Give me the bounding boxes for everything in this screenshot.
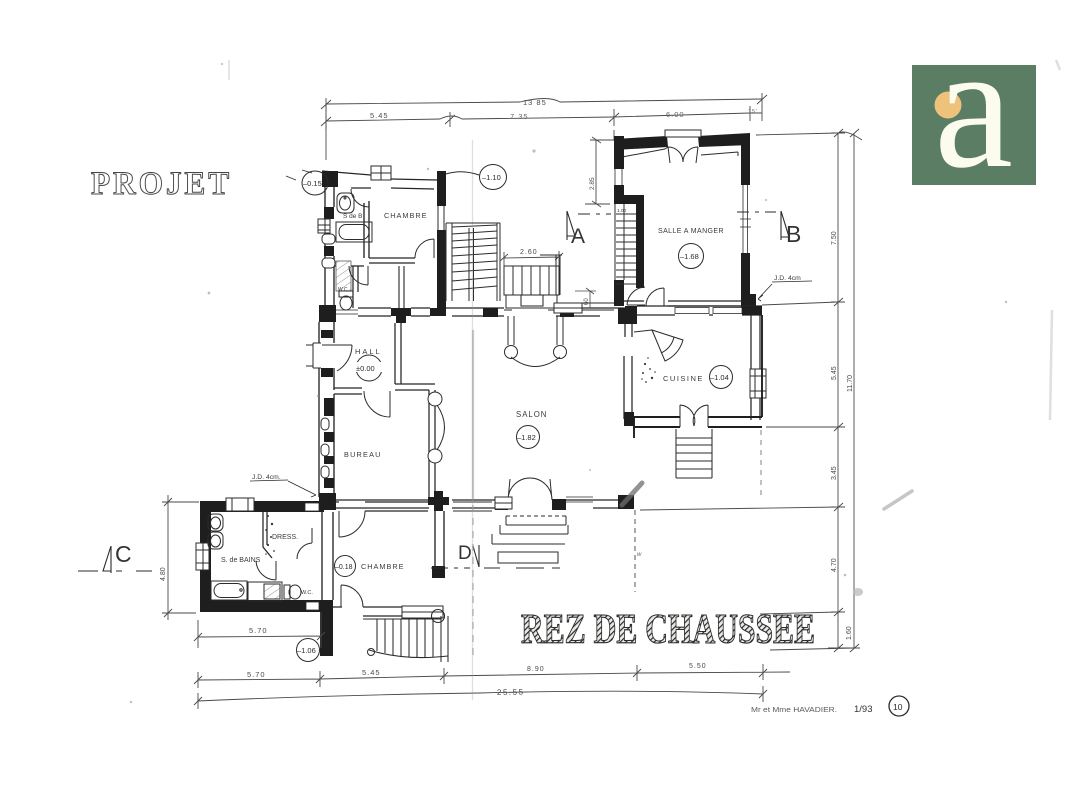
svg-text:–1.06: –1.06: [297, 646, 316, 655]
svg-text:4.70: 4.70: [831, 558, 838, 572]
svg-text:BUREAU: BUREAU: [344, 450, 382, 459]
svg-text:SALON: SALON: [516, 410, 547, 419]
svg-text:5.50: 5.50: [689, 663, 707, 670]
svg-text:SALLE A MANGER: SALLE A MANGER: [658, 228, 724, 235]
svg-text:–0.18: –0.18: [335, 564, 353, 571]
svg-text:7.50: 7.50: [831, 231, 838, 245]
svg-text:A: A: [571, 225, 585, 248]
svg-text:11.70: 11.70: [847, 375, 854, 392]
svg-text:–1.82: –1.82: [517, 433, 536, 442]
svg-text:4.80: 4.80: [160, 567, 167, 581]
svg-text:2.85: 2.85: [589, 177, 596, 190]
svg-text:1.60: 1.60: [846, 626, 853, 640]
svg-text:Mr et Mme HAVADIER.: Mr et Mme HAVADIER.: [751, 707, 837, 714]
svg-text:CHAMBRE: CHAMBRE: [361, 562, 405, 571]
svg-text:–1.04: –1.04: [710, 373, 729, 382]
svg-text:3.45: 3.45: [831, 466, 838, 480]
svg-text:15': 15': [748, 109, 758, 115]
svg-text:C: C: [115, 541, 132, 567]
svg-text:–1.68: –1.68: [680, 252, 699, 261]
svg-text:J.D. 4cm.: J.D. 4cm.: [252, 474, 281, 481]
svg-text:1.00: 1.00: [617, 208, 627, 214]
svg-text:–1.10: –1.10: [482, 173, 501, 182]
svg-text:S. de BAINS: S. de BAINS: [221, 557, 261, 564]
svg-text:5.70: 5.70: [249, 626, 268, 635]
svg-text:CUISINE: CUISINE: [663, 374, 704, 383]
svg-text:–0.15: –0.15: [303, 179, 322, 188]
svg-text:S de B: S de B: [343, 213, 363, 220]
svg-text:PROJET: PROJET: [91, 166, 232, 202]
svg-text:5.45: 5.45: [831, 366, 838, 380]
svg-text:5.45: 5.45: [362, 668, 381, 677]
svg-text:5.70: 5.70: [247, 670, 266, 679]
svg-text:±0.00: ±0.00: [356, 364, 375, 373]
svg-text:w: w: [637, 552, 642, 558]
svg-text:B: B: [786, 221, 801, 247]
svg-text:10: 10: [893, 702, 903, 712]
svg-text:2.60: 2.60: [520, 249, 538, 256]
svg-text:8.90: 8.90: [527, 666, 545, 673]
svg-text:1/93: 1/93: [854, 704, 873, 715]
svg-text:CHAMBRE: CHAMBRE: [384, 211, 428, 220]
svg-text:W.C: W.C: [338, 287, 348, 293]
svg-text:J.D. 4cm: J.D. 4cm: [774, 275, 801, 282]
svg-text:D: D: [458, 543, 472, 564]
svg-text:5.45: 5.45: [370, 111, 389, 120]
svg-text:13 85: 13 85: [523, 98, 547, 107]
svg-text:60: 60: [584, 298, 590, 305]
svg-text:DRESS.: DRESS.: [272, 534, 298, 541]
svg-text:25.55: 25.55: [497, 688, 525, 697]
svg-text:a: a: [934, 7, 1013, 205]
svg-text:6.00: 6.00: [666, 110, 685, 119]
svg-text:W.C.: W.C.: [301, 590, 313, 596]
svg-text:7.35: 7.35: [510, 112, 529, 121]
